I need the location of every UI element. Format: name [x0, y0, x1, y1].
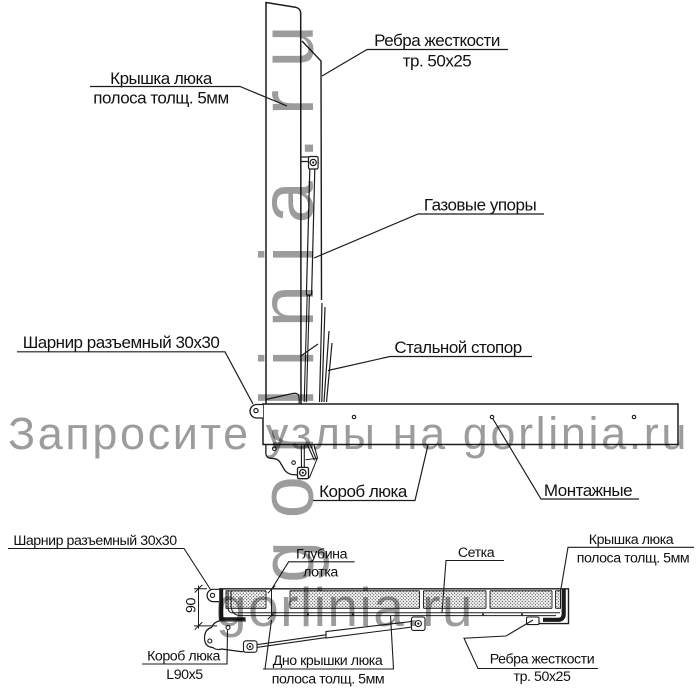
svg-text:полоса толщ. 5мм: полоса толщ. 5мм: [93, 89, 228, 108]
svg-text:Короб люка: Короб люка: [147, 649, 220, 665]
svg-text:полоса толщ. 5мм: полоса толщ. 5мм: [272, 672, 384, 688]
svg-text:полоса толщ. 5мм: полоса толщ. 5мм: [577, 551, 689, 567]
svg-text:gorlinia.ru: gorlinia.ru: [216, 576, 474, 638]
svg-text:Монтажные: Монтажные: [544, 481, 632, 500]
svg-text:Короб люка: Короб люка: [319, 482, 408, 501]
svg-text:Шарнир разъемный 30х30: Шарнир разъемный 30х30: [13, 533, 177, 549]
svg-text:Крышка люка: Крышка люка: [110, 69, 213, 88]
svg-text:gorlinia.ru: gorlinia.ru: [245, 3, 330, 583]
svg-text:Ребра жесткости: Ребра жесткости: [374, 31, 500, 50]
svg-text:Стальной стопор: Стальной стопор: [394, 338, 521, 357]
svg-text:Сетка: Сетка: [458, 545, 495, 561]
svg-text:Запросите узлы на gorlinia.ru: Запросите узлы на gorlinia.ru: [8, 408, 689, 459]
svg-text:Дно крышки люка: Дно крышки люка: [273, 653, 383, 669]
svg-text:Шарнир разъемный 30х30: Шарнир разъемный 30х30: [23, 333, 220, 352]
svg-text:тр. 50х25: тр. 50х25: [403, 52, 472, 71]
svg-text:Ребра жесткости: Ребра жесткости: [490, 652, 594, 668]
svg-text:Газовые упоры: Газовые упоры: [424, 196, 537, 215]
svg-text:Крышка люка: Крышка люка: [589, 532, 674, 548]
svg-text:L90х5: L90х5: [166, 667, 203, 683]
svg-text:тр. 50х25: тр. 50х25: [514, 669, 571, 685]
svg-text:90: 90: [184, 598, 200, 613]
